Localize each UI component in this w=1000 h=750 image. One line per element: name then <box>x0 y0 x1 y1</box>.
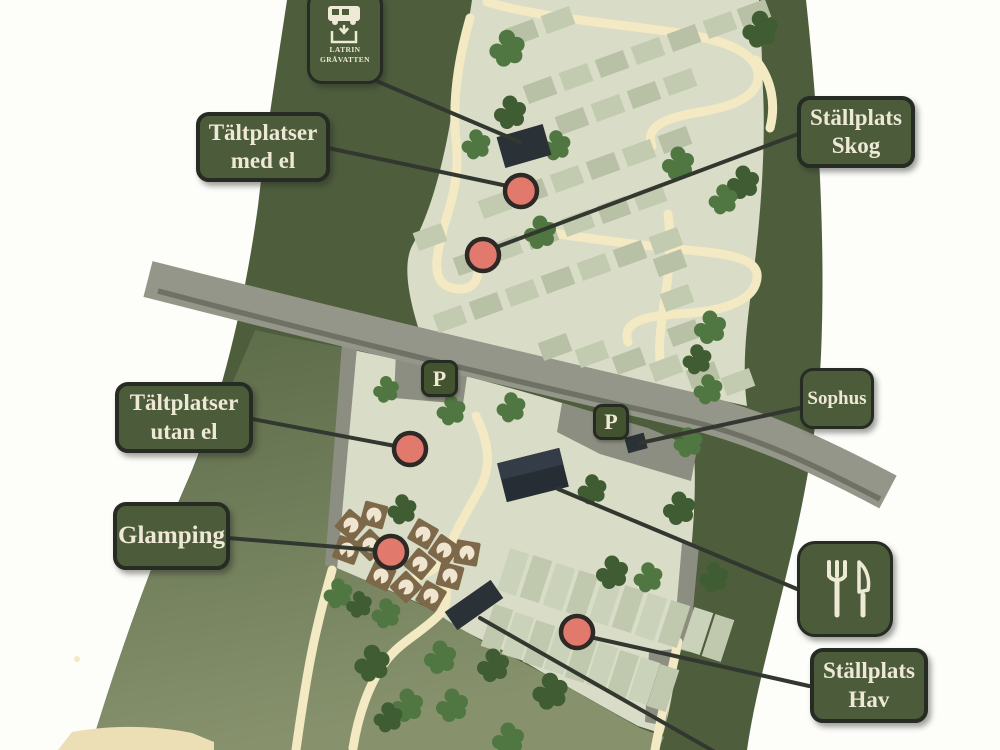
callout-text: utan el <box>150 418 217 446</box>
latrin-caption-line2: GRÅVATTEN <box>320 55 370 64</box>
marker-utan-el <box>394 433 426 465</box>
path-dot <box>74 656 80 662</box>
callout-text: Skog <box>832 132 881 160</box>
marker-hav <box>561 616 593 648</box>
callout-taltplatser-med-el: Tältplatser med el <box>196 112 330 182</box>
callout-taltplatser-utan-el: Tältplatser utan el <box>115 382 253 453</box>
marker-glamping <box>375 536 407 568</box>
restaurant-callout <box>797 541 893 637</box>
callout-sophus: Sophus <box>800 368 874 429</box>
callout-text: Tältplatser <box>130 389 239 417</box>
callout-text: med el <box>231 147 296 175</box>
latrin-caption-line1: LATRIN <box>329 45 360 54</box>
fork-knife-icon <box>815 557 875 621</box>
callout-text: Glamping <box>118 521 225 552</box>
parking-marker-2: P <box>593 404 629 440</box>
latrin-caption: LATRIN GRÅVATTEN <box>310 45 380 65</box>
parking-letter: P <box>433 366 446 392</box>
latrin-gravatten-callout: LATRIN GRÅVATTEN <box>307 0 383 84</box>
marker-med-el <box>505 175 537 207</box>
callout-stallplats-skog: Ställplats Skog <box>797 96 915 168</box>
parking-marker-1: P <box>421 360 458 397</box>
callout-text: Sophus <box>807 387 866 410</box>
callout-text: Tältplatser <box>209 119 318 147</box>
callout-glamping: Glamping <box>113 502 230 570</box>
callout-text: Ställplats <box>810 104 902 132</box>
marker-skog <box>467 239 499 271</box>
parking-letter: P <box>604 409 617 435</box>
callout-text: Hav <box>849 686 890 714</box>
rv-greywater-icon <box>323 3 367 45</box>
campsite-map: LATRIN GRÅVATTEN Tältplatser med el Stäl… <box>0 0 1000 750</box>
callout-text: Ställplats <box>823 657 915 685</box>
callout-stallplats-hav: Ställplats Hav <box>810 648 928 723</box>
